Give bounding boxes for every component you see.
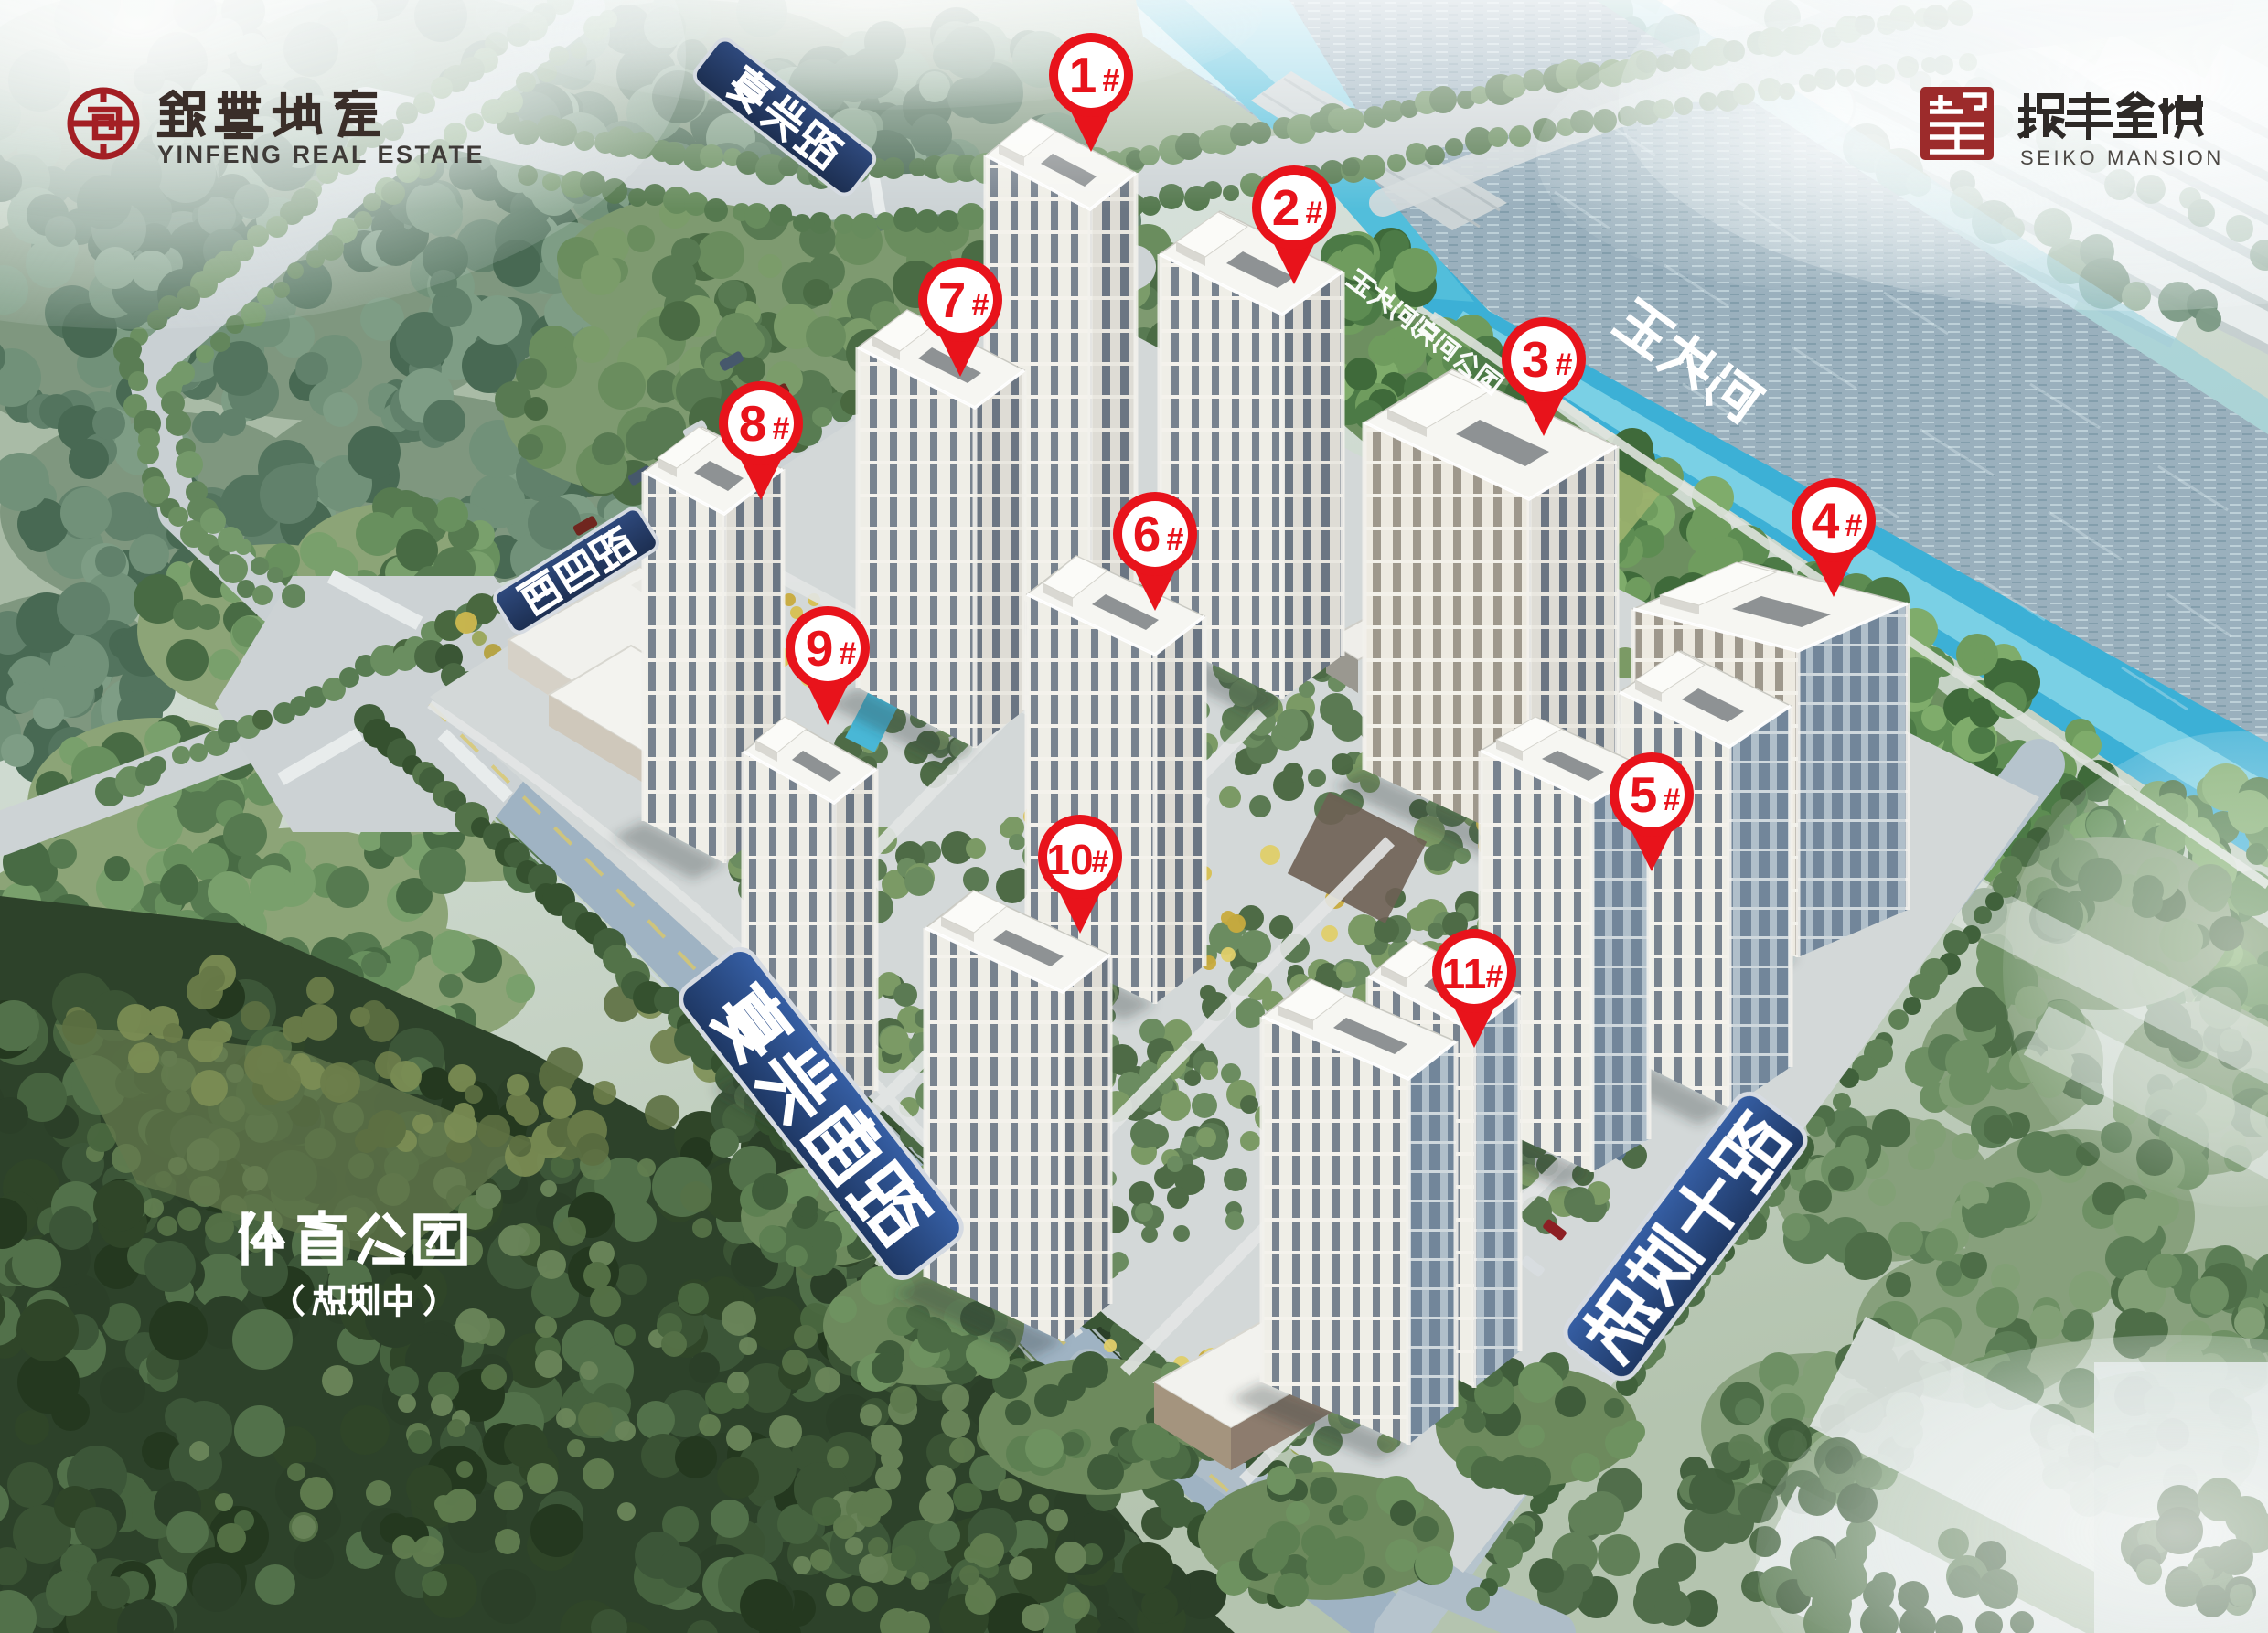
svg-text:#: #	[1103, 63, 1120, 98]
svg-text:1: 1	[1069, 47, 1097, 103]
svg-text:#: #	[1486, 959, 1503, 994]
svg-text:#: #	[1092, 845, 1109, 880]
svg-text:#: #	[972, 288, 990, 323]
svg-text:#: #	[1306, 196, 1323, 230]
svg-text:5: 5	[1630, 766, 1658, 823]
svg-text:3: 3	[1522, 331, 1550, 388]
svg-text:YINFENG REAL ESTATE: YINFENG REAL ESTATE	[157, 141, 485, 168]
svg-text:#: #	[1556, 347, 1573, 382]
svg-text:7: 7	[938, 272, 967, 328]
svg-text:SEIKO MANSION: SEIKO MANSION	[2020, 146, 2224, 169]
svg-text:#: #	[1167, 522, 1184, 557]
svg-text:9: 9	[806, 620, 834, 677]
svg-text:11: 11	[1442, 950, 1487, 998]
svg-text:2: 2	[1272, 179, 1300, 236]
svg-text:#: #	[773, 411, 790, 446]
svg-text:4: 4	[1812, 492, 1840, 549]
svg-text:8: 8	[739, 395, 767, 452]
svg-text:10: 10	[1046, 836, 1093, 883]
svg-text:6: 6	[1133, 506, 1161, 562]
svg-text:#: #	[1845, 508, 1863, 543]
svg-text:#: #	[1664, 783, 1681, 817]
svg-text:#: #	[840, 636, 857, 671]
